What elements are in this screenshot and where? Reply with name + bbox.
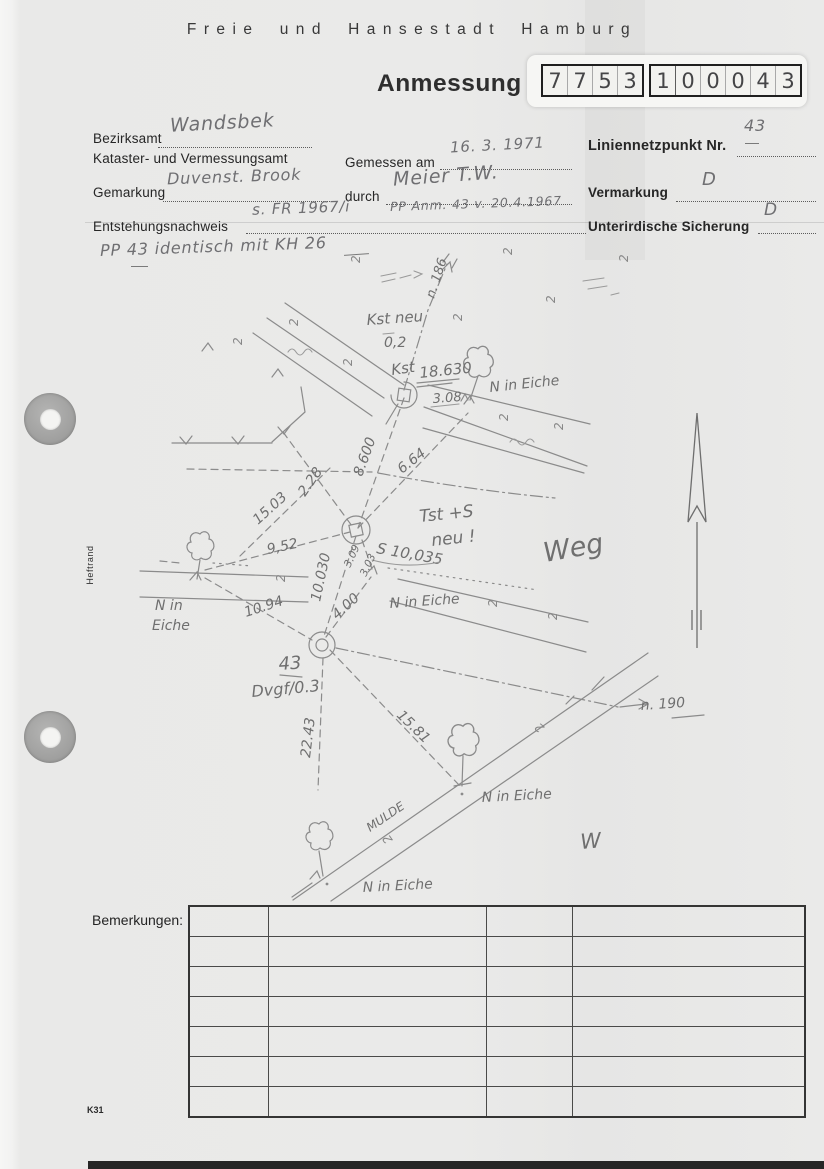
bemerkungen-label: Bemerkungen:: [92, 912, 183, 928]
label-dist-1094: 10.94: [242, 593, 285, 621]
table-cell: [189, 937, 269, 967]
table-cell: [189, 1057, 269, 1087]
table-row: [189, 937, 805, 967]
table-cell: [269, 1087, 487, 1118]
label-dist-952: 9,52: [266, 536, 300, 558]
label-kst-neu-value: 0,2: [384, 335, 406, 351]
table-row: [189, 906, 805, 937]
label-dist-10030: 10.030: [308, 551, 334, 602]
equals-arrow-marks: [381, 271, 619, 295]
grass-symbol: 2: [546, 612, 560, 620]
table-cell: [573, 937, 806, 967]
label-dist-309a: 3.09: [342, 543, 363, 570]
table-cell: [487, 937, 573, 967]
table-cell: [189, 997, 269, 1027]
table-row: [189, 1057, 805, 1087]
table-cell: [189, 906, 269, 937]
grass-symbol: 2: [497, 413, 511, 421]
grass-symbol: 2: [617, 254, 631, 262]
label-n-in-eiche-mid: N in Eiche: [389, 591, 460, 612]
table-cell: [573, 997, 806, 1027]
grass-symbol: 2: [287, 318, 301, 326]
scanned-form-page: Heftrand Freie und Hansestadt Hamburg An…: [0, 0, 824, 1169]
grass-symbol: 2: [532, 720, 547, 736]
table-row: [189, 967, 805, 997]
label-w: W: [579, 828, 603, 854]
grass-symbol: 2: [501, 247, 515, 255]
label-n-in-eiche-top: N in Eiche: [489, 373, 560, 396]
table-cell: [487, 1057, 573, 1087]
label-bearing-190: n. 190: [640, 695, 686, 714]
label-tst-note-1: Tst +S: [418, 501, 474, 527]
label-kst: Kst: [390, 358, 417, 379]
table-cell: [487, 997, 573, 1027]
table-cell: [269, 967, 487, 997]
label-point-43: 43: [278, 652, 302, 675]
table-cell: [189, 1027, 269, 1057]
tree-symbol-bottom: [306, 822, 333, 886]
remarks-table: [188, 905, 806, 1118]
grass-symbol: 2: [349, 255, 363, 263]
label-dist-1581: 15.81: [393, 707, 433, 746]
table-row: [189, 1027, 805, 1057]
table-cell: [487, 967, 573, 997]
survey-point-kst: [391, 382, 417, 408]
grass-symbol: 2: [274, 574, 288, 582]
table-cell: [487, 1087, 573, 1118]
form-code: K31: [87, 1105, 104, 1115]
table-cell: [487, 906, 573, 937]
label-kst-neu: Kst neu: [366, 307, 424, 329]
label-dist-228: 2.28: [295, 465, 326, 500]
label-mulde: MULDE: [364, 799, 408, 835]
grass-symbol: 2: [341, 358, 355, 366]
grass-symbol: 2: [544, 295, 558, 303]
label-eiche: Eiche: [152, 618, 190, 634]
label-bearing-186: n. 186: [424, 256, 451, 300]
table-row: [189, 997, 805, 1027]
label-n-in-eiche-bottom: N in Eiche: [362, 876, 433, 896]
tree-symbol-lower-right: [448, 724, 479, 796]
label-n-in: N in: [155, 598, 183, 614]
label-dvgf: Dvgf/0.3: [251, 676, 321, 701]
label-tst-note-2: neu !: [430, 526, 476, 551]
label-dist-2243: 22.43: [298, 717, 319, 759]
survey-point-43: [309, 632, 335, 658]
grass-symbol: 2: [231, 337, 245, 345]
table-row: [189, 1087, 805, 1118]
survey-point-tst: [342, 516, 370, 544]
table-cell: [269, 937, 487, 967]
label-kst-height: 18.630: [419, 359, 473, 382]
table-cell: [189, 1087, 269, 1118]
table-cell: [269, 997, 487, 1027]
label-dist-8600: 8.600: [351, 435, 380, 478]
grass-symbol: 2: [486, 599, 500, 607]
grass-symbol: 2: [552, 422, 566, 430]
label-dist-309b: 3.03: [358, 552, 379, 578]
table-cell: [573, 1087, 806, 1118]
label-n-in-eiche-lower: N in Eiche: [481, 786, 552, 806]
table-cell: [269, 1027, 487, 1057]
table-cell: [269, 906, 487, 937]
table-cell: [487, 1027, 573, 1057]
label-weg: Weg: [541, 528, 606, 569]
table-cell: [269, 1057, 487, 1087]
table-cell: [573, 1027, 806, 1057]
table-cell: [573, 967, 806, 997]
grass-symbol: 2: [451, 313, 465, 321]
table-cell: [189, 967, 269, 997]
sketch-labels: Kst neu 0,2 Kst 18.630 3.08 N in Eiche n…: [152, 256, 686, 896]
table-cell: [573, 1057, 806, 1087]
north-arrow: [688, 413, 706, 648]
table-cell: [573, 906, 806, 937]
label-dist-1503: 15.03: [250, 489, 291, 528]
